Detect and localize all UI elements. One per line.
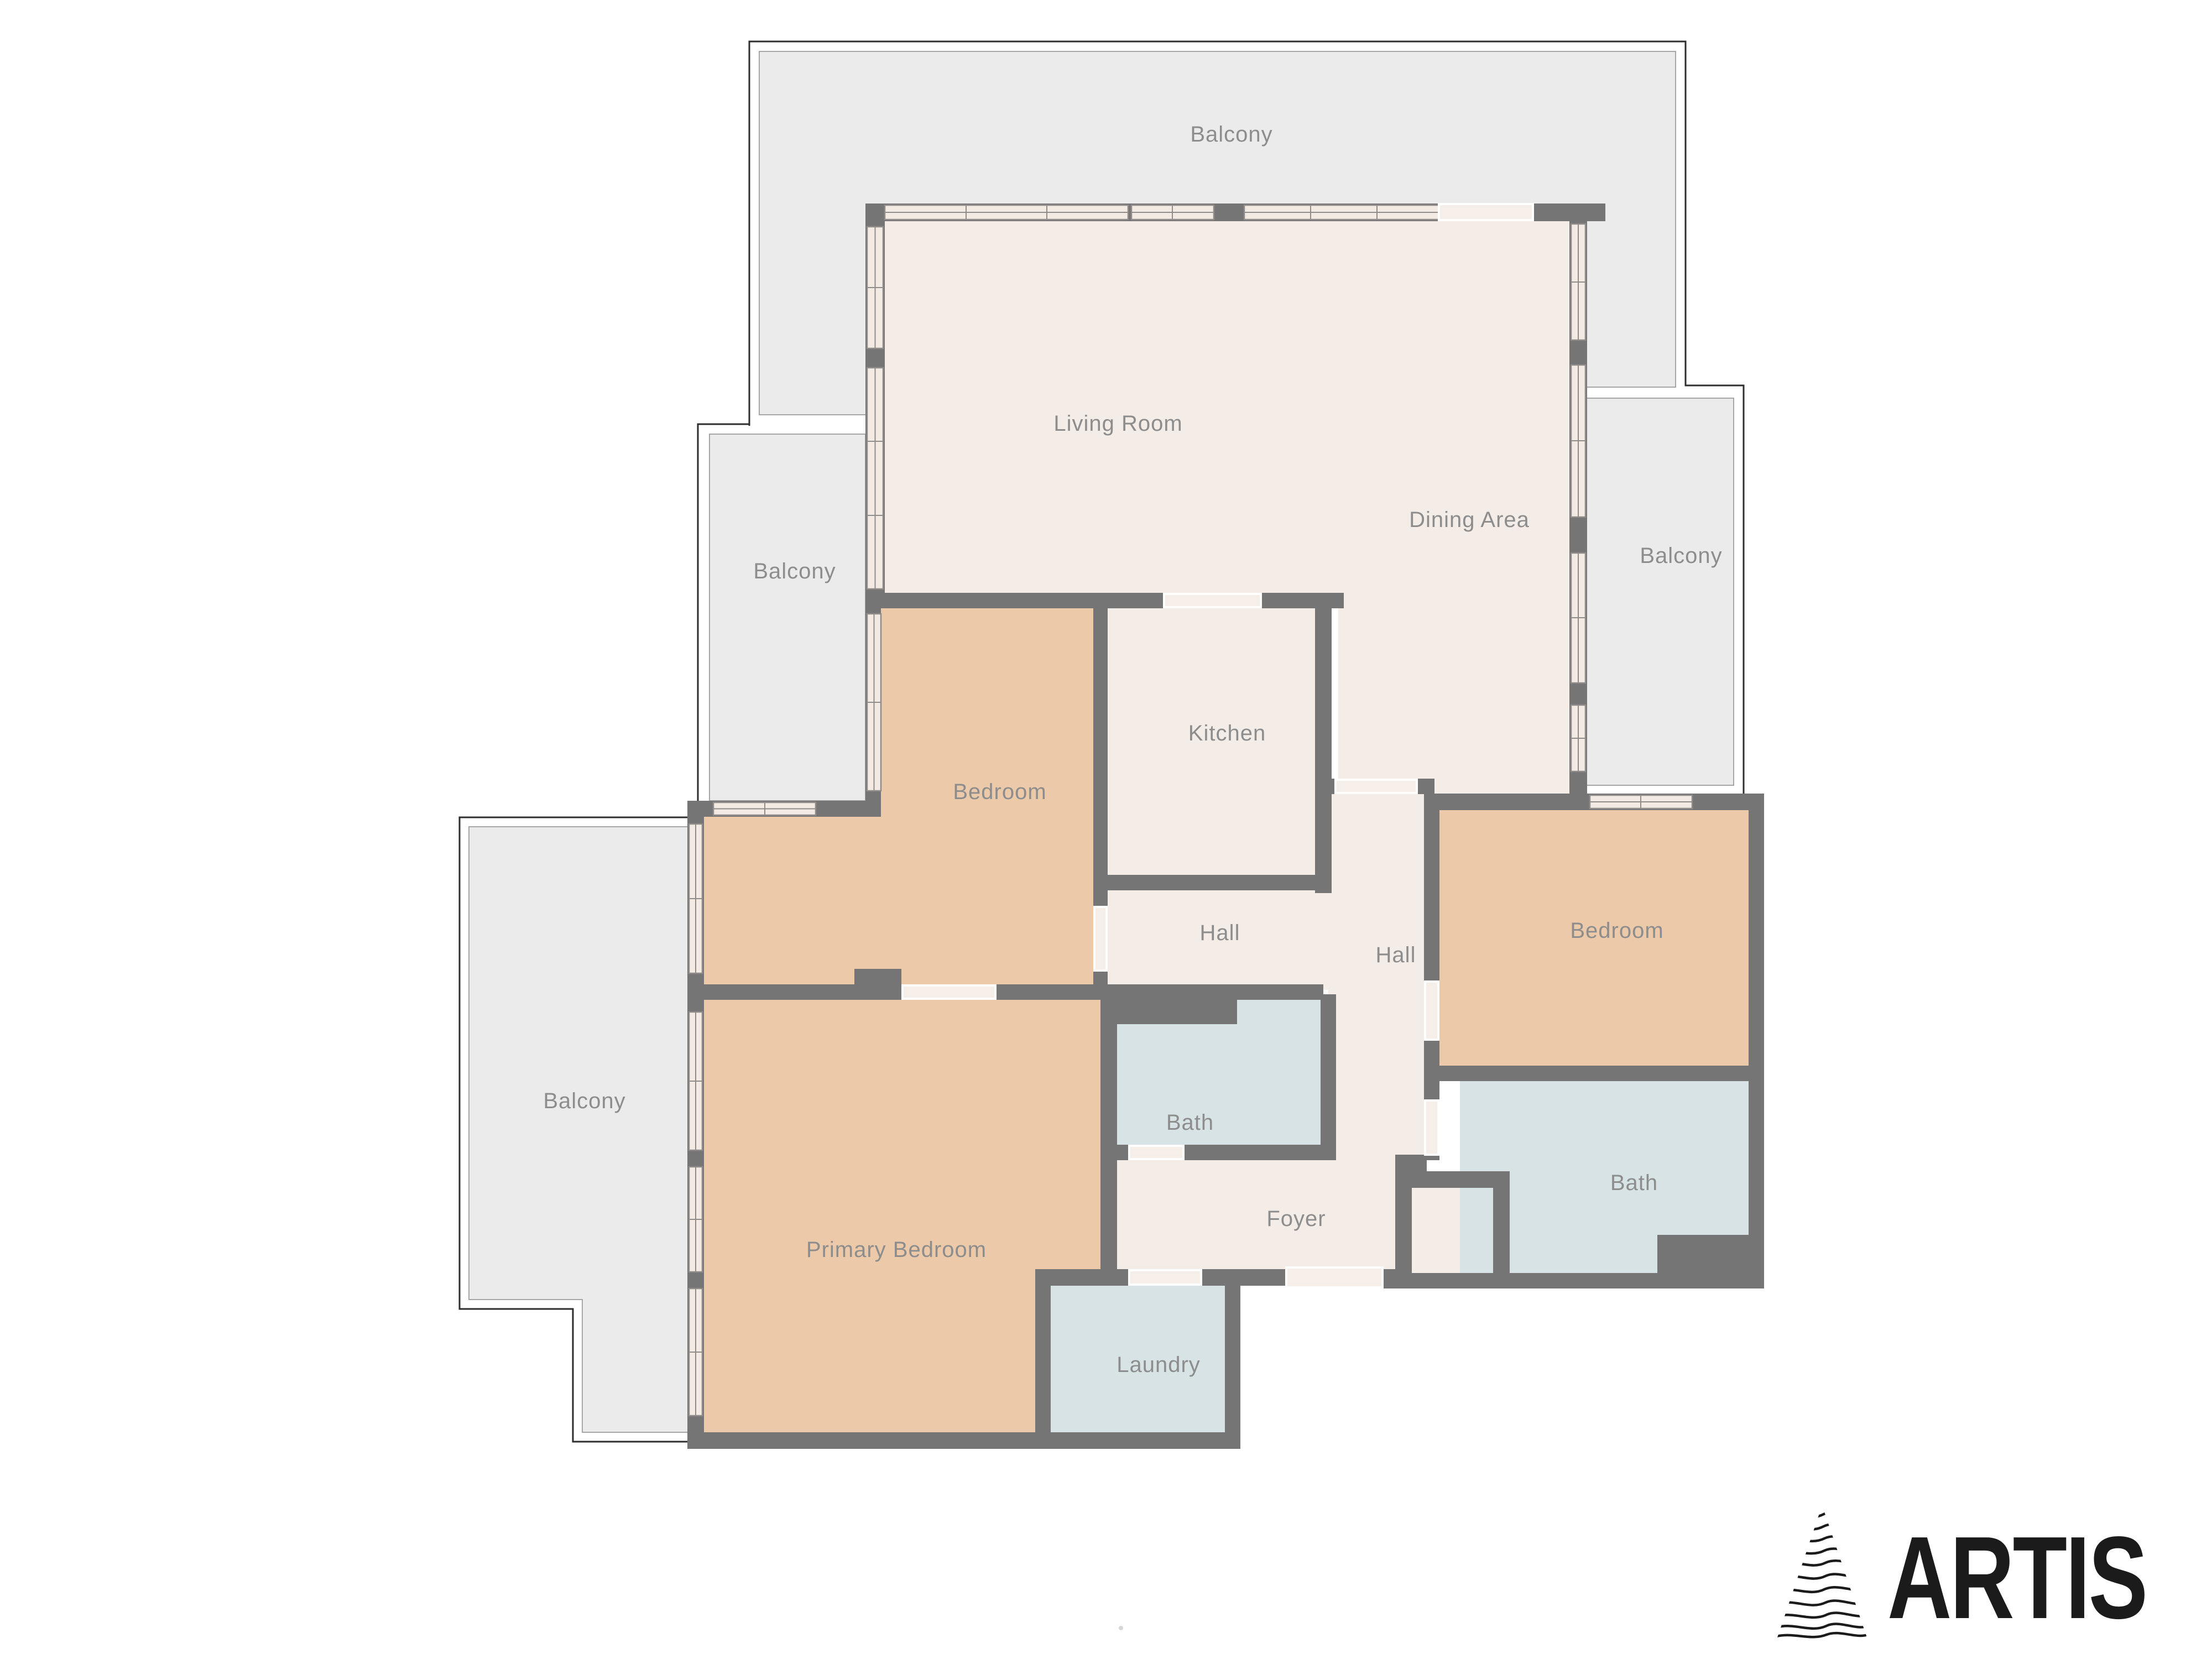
window-vertical <box>867 614 881 791</box>
room-label-foyer: Foyer <box>1266 1207 1326 1231</box>
foyer-floor <box>1112 1150 1405 1277</box>
room-label-laundry: Laundry <box>1117 1353 1201 1377</box>
wall-segment <box>1395 1171 1412 1275</box>
window-vertical <box>1571 224 1585 340</box>
door-opening <box>1286 1267 1383 1287</box>
wall-segment <box>1315 593 1332 893</box>
wall-segment <box>1439 1066 1749 1081</box>
window-vertical <box>1571 705 1585 771</box>
page-dot <box>1119 1626 1123 1630</box>
window-vertical <box>689 824 702 973</box>
window-horizontal <box>713 802 816 815</box>
window-horizontal <box>1590 795 1692 808</box>
balcony-left <box>709 434 865 801</box>
window-vertical <box>1571 553 1585 683</box>
room-label-bedroom: Bedroom <box>953 780 1046 804</box>
balcony-right <box>1586 398 1734 785</box>
wall-segment <box>1749 794 1764 1288</box>
door-opening <box>1164 594 1261 607</box>
artis-logo-icon <box>1774 1512 1871 1637</box>
room-label-primary-bedroom: Primary Bedroom <box>806 1238 987 1262</box>
room-label-balcony: Balcony <box>1190 122 1272 147</box>
window-vertical <box>689 1288 702 1416</box>
brand-name: ARTIS <box>1887 1512 2146 1643</box>
window-vertical <box>689 1012 702 1150</box>
wall-segment <box>1100 1000 1117 1275</box>
door-opening <box>1094 907 1107 971</box>
door-opening <box>902 985 995 999</box>
dining-lower-floor <box>1338 603 1576 802</box>
room-label-hall: Hall <box>1376 943 1416 967</box>
door-opening <box>1425 1100 1438 1155</box>
wall-segment <box>704 984 1323 1000</box>
living-dining-floor <box>874 210 1582 603</box>
wall-segment <box>1395 1155 1427 1174</box>
room-label-balcony: Balcony <box>543 1089 625 1113</box>
room-label-balcony: Balcony <box>753 559 836 583</box>
wall-segment <box>1108 875 1332 890</box>
window-vertical <box>867 368 883 589</box>
wall-segment <box>1383 1273 1764 1288</box>
window-horizontal <box>885 205 1128 220</box>
wall-segment <box>1102 1000 1237 1024</box>
window-vertical <box>1571 365 1585 517</box>
wall-segment <box>854 969 901 985</box>
window-vertical <box>689 1167 702 1272</box>
artis-logo: ARTIS <box>1774 1512 2146 1643</box>
room-label-bath: Bath <box>1610 1171 1658 1195</box>
room-label-balcony: Balcony <box>1640 544 1722 568</box>
room-label-kitchen: Kitchen <box>1188 721 1266 745</box>
window-vertical <box>867 227 883 348</box>
hall-corridor-floor <box>1328 785 1426 1167</box>
wall-segment <box>1225 1280 1240 1449</box>
door-opening <box>1335 780 1417 793</box>
room-label-living-room: Living Room <box>1053 411 1182 436</box>
window-horizontal <box>1244 205 1443 220</box>
wall-segment <box>1035 1269 1051 1449</box>
room-label-bedroom: Bedroom <box>1570 919 1663 943</box>
balcony-bottom-left <box>469 827 698 1432</box>
room-label-dining-area: Dining Area <box>1409 508 1530 532</box>
wall-segment <box>1321 994 1336 1160</box>
door-opening <box>1439 204 1533 220</box>
floorplan-page: BalconyLiving RoomDining AreaBalconyBalc… <box>0 0 2212 1659</box>
wall-segment <box>687 1432 1240 1449</box>
floorplan-svg: BalconyLiving RoomDining AreaBalconyBalc… <box>0 0 2212 1659</box>
door-opening <box>1425 982 1438 1040</box>
window-horizontal <box>1131 205 1214 220</box>
room-label-bath: Bath <box>1166 1110 1214 1135</box>
wall-segment <box>1657 1235 1764 1273</box>
wall-segment <box>1493 1188 1510 1275</box>
door-opening <box>1129 1270 1201 1285</box>
door-opening <box>1129 1146 1183 1159</box>
room-label-hall: Hall <box>1200 921 1240 945</box>
